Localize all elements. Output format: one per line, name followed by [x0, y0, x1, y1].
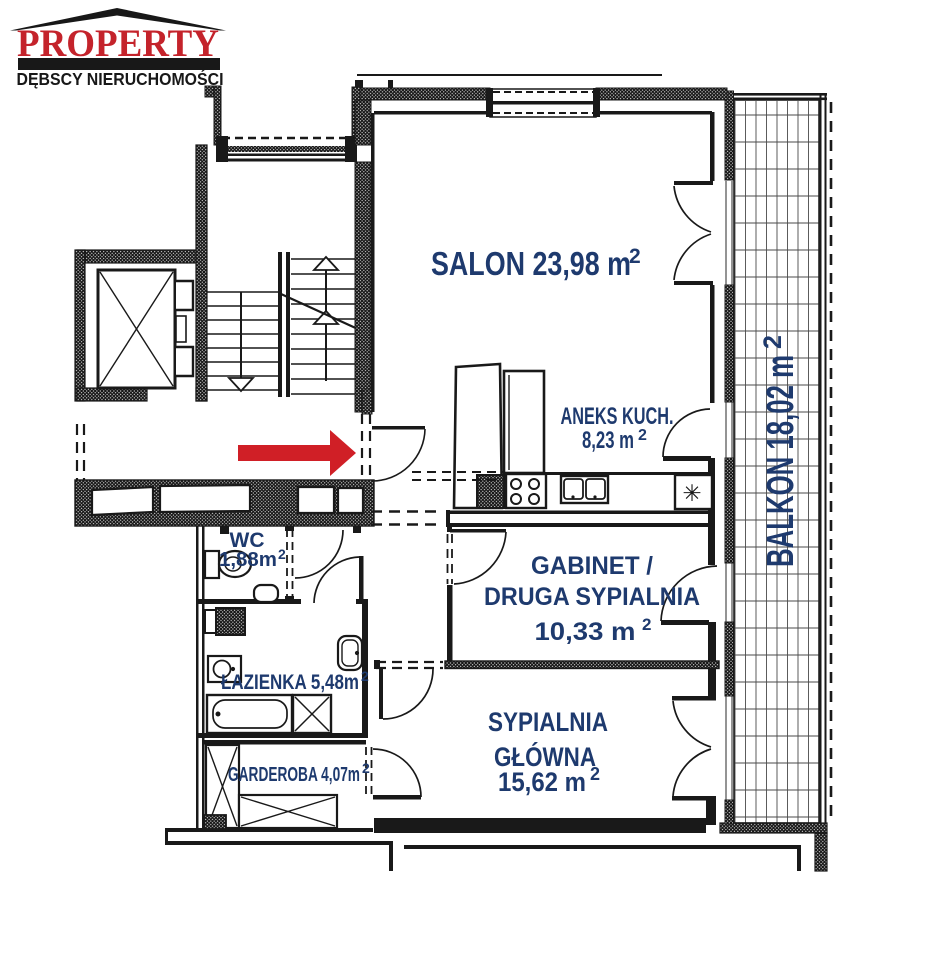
svg-text:GARDEROBA 4,07m: GARDEROBA 4,07m: [228, 764, 360, 786]
svg-text:2: 2: [362, 760, 370, 776]
svg-text:10,33 m: 10,33 m: [535, 618, 636, 646]
svg-text:SYPIALNIA: SYPIALNIA: [488, 707, 608, 737]
svg-text:BALKON 18,02 m: BALKON 18,02 m: [760, 355, 802, 567]
svg-text:✳: ✳: [682, 480, 701, 506]
svg-text:2: 2: [629, 245, 641, 268]
svg-text:GABINET /: GABINET /: [531, 552, 653, 580]
svg-text:2: 2: [642, 615, 651, 634]
svg-text:2: 2: [590, 764, 600, 784]
svg-text:ŁAZIENKA 5,48m: ŁAZIENKA 5,48m: [221, 671, 359, 694]
svg-text:2: 2: [361, 668, 369, 684]
svg-text:2: 2: [278, 546, 286, 562]
svg-text:15,62 m: 15,62 m: [498, 767, 586, 797]
svg-text:2: 2: [638, 427, 647, 444]
svg-text:1,88m: 1,88m: [219, 549, 277, 571]
svg-text:8,23 m: 8,23 m: [582, 427, 634, 454]
svg-text:DRUGA SYPIALNIA: DRUGA SYPIALNIA: [484, 583, 700, 611]
svg-text:DĘBSCY NIERUCHOMOŚCI: DĘBSCY NIERUCHOMOŚCI: [17, 68, 224, 89]
svg-text:SALON 23,98 m: SALON 23,98 m: [431, 245, 631, 282]
svg-text:2: 2: [759, 335, 787, 349]
svg-text:ANEKS KUCH.: ANEKS KUCH.: [561, 403, 674, 430]
